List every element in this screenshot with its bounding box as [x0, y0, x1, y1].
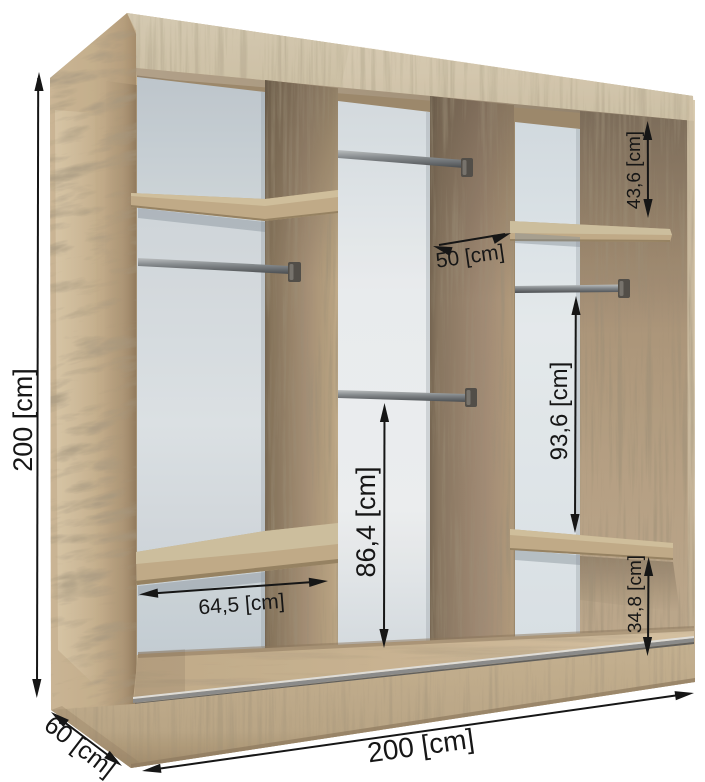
svg-text:200 [cm]: 200 [cm]: [8, 368, 38, 472]
svg-text:93,6 [cm]: 93,6 [cm]: [546, 362, 573, 461]
svg-text:34,8 [cm]: 34,8 [cm]: [625, 555, 646, 633]
svg-text:43,6 [cm]: 43,6 [cm]: [624, 131, 645, 209]
svg-text:86,4 [cm]: 86,4 [cm]: [351, 466, 381, 577]
